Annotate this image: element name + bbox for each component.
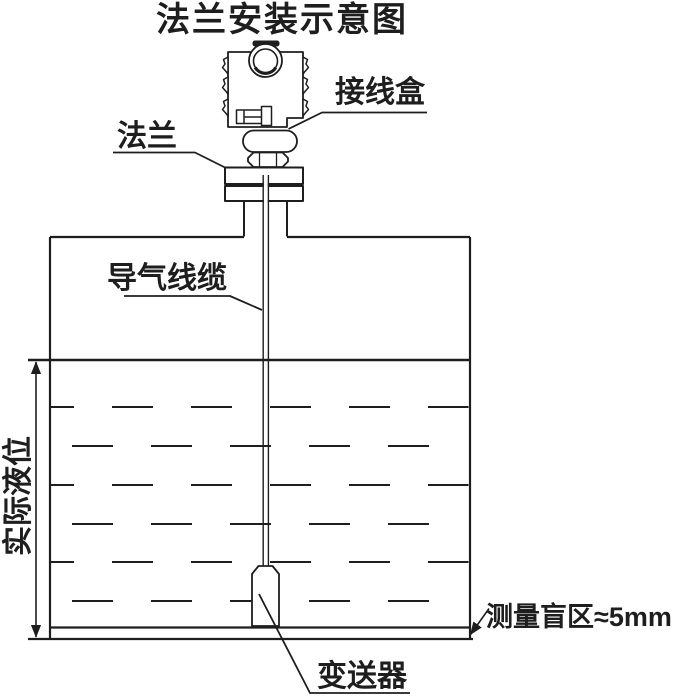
leader-junction-box — [289, 113, 428, 130]
junction-box-label: 接线盒 — [335, 77, 425, 109]
leader-flange — [113, 153, 225, 168]
actual-level-label: 实际液位 — [3, 426, 37, 566]
diagram-title: 法兰安装示意图 — [156, 3, 406, 39]
probe-weight — [252, 566, 279, 626]
leader-air-cable — [124, 296, 262, 310]
tank — [28, 237, 473, 639]
blind-zone-label: 测量盲区≈5mm — [486, 603, 672, 631]
hex-nut — [248, 153, 288, 168]
sight-glass — [249, 41, 282, 78]
terminal-block — [237, 107, 272, 126]
cable — [263, 175, 268, 567]
transmitter-label: 变送器 — [317, 661, 407, 693]
flange-label: 法兰 — [117, 121, 177, 153]
air-cable-label: 导气线缆 — [107, 263, 227, 295]
diagram-canvas: 法兰安装示意图 接线盒 法兰 导气线缆 实际液位 变送器 测量盲区≈5mm — [0, 0, 700, 700]
swivel-joint — [243, 131, 297, 153]
transmitter-head — [223, 41, 309, 168]
